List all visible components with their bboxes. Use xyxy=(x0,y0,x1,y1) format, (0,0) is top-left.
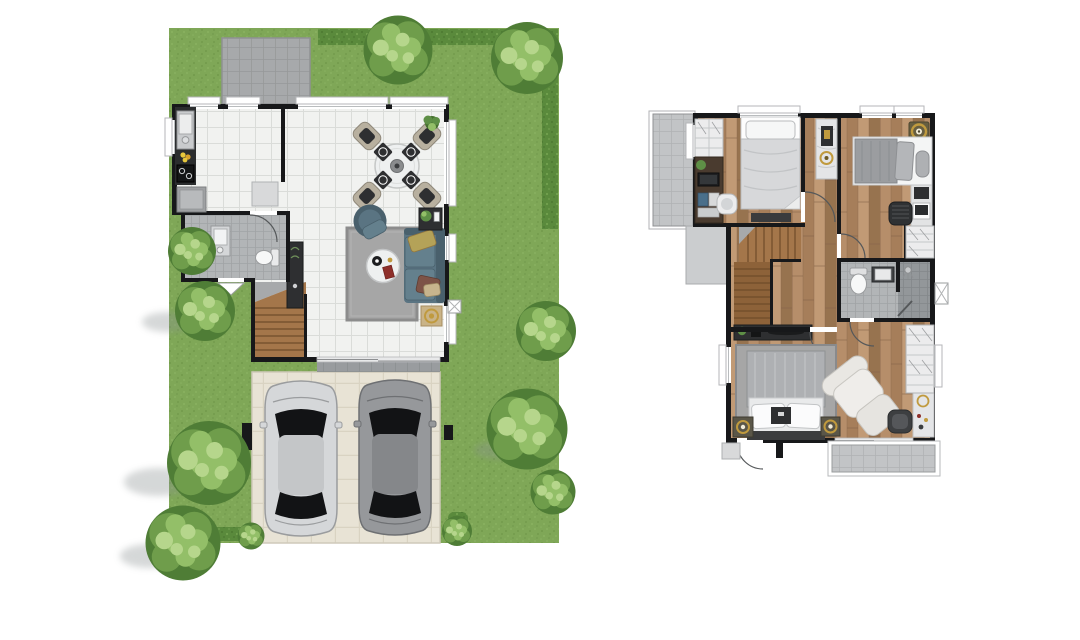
phone xyxy=(434,212,440,222)
basin xyxy=(217,247,223,253)
single-bed-2 xyxy=(741,117,800,209)
cushion-tan xyxy=(423,283,441,297)
tree-right-mid xyxy=(516,301,576,361)
toilet xyxy=(256,249,280,266)
upper-floor-plan xyxy=(649,106,948,476)
tree-bottom-left xyxy=(167,421,251,505)
desk-2 xyxy=(695,157,723,223)
cabinet xyxy=(252,182,278,206)
master-bed xyxy=(747,351,825,440)
side-table xyxy=(419,208,442,230)
stove xyxy=(177,165,194,182)
tree-bottom-corner xyxy=(146,506,221,581)
toilet-upper xyxy=(850,268,867,294)
walk-in-closet-3 xyxy=(906,226,934,258)
tree-top-right xyxy=(491,22,563,94)
wardrobe-2 xyxy=(695,119,723,157)
vanity-table xyxy=(913,393,934,437)
bathroom-window-ac xyxy=(935,283,948,304)
headboard xyxy=(747,431,825,440)
bush-left xyxy=(168,227,216,275)
bed-3 xyxy=(853,137,932,185)
bathroom-door-gap xyxy=(250,211,277,215)
bush-small-1 xyxy=(238,523,265,550)
tree-right-lower xyxy=(487,389,568,470)
master-wardrobe xyxy=(906,325,934,393)
patio-slab xyxy=(222,38,310,104)
silver-car xyxy=(260,381,342,536)
tree-top xyxy=(364,16,433,85)
tree-left xyxy=(175,281,235,341)
pillow-master-right xyxy=(786,403,820,429)
wash-basin-upper xyxy=(872,267,894,282)
pillow-3 xyxy=(895,141,915,180)
duvet xyxy=(741,139,800,209)
desk-chair-3 xyxy=(889,202,912,225)
air-conditioner-unit xyxy=(448,300,461,313)
marble-console xyxy=(816,119,837,179)
lower-roof-ledge xyxy=(686,226,732,284)
foot-bench-2 xyxy=(751,213,791,222)
pillow xyxy=(746,121,795,139)
bathroom-door2-gap xyxy=(218,278,244,282)
floorplan-canvas xyxy=(0,0,1080,640)
nightstand-right xyxy=(821,417,840,436)
bedroom-2 xyxy=(695,117,800,223)
tree-right-bottom xyxy=(531,470,576,515)
nightstand-left xyxy=(733,417,753,437)
terrace-sliding-door xyxy=(317,357,440,362)
exit-step xyxy=(722,443,740,459)
gray-car xyxy=(354,380,436,535)
master-balcony xyxy=(828,441,940,476)
bush-small-2 xyxy=(442,516,472,546)
sofa xyxy=(404,228,445,303)
gold-tray-table xyxy=(421,306,442,326)
kitchen-sink xyxy=(177,111,194,149)
ground-floor-site-plan xyxy=(120,16,576,581)
vanity-stool xyxy=(888,410,912,433)
duvet-3 xyxy=(855,139,897,183)
floorplan-svg xyxy=(0,0,1080,640)
gate-post-right xyxy=(444,425,453,440)
coffee-table xyxy=(367,250,400,283)
study-desk-3 xyxy=(911,185,932,226)
bolster xyxy=(916,151,929,177)
